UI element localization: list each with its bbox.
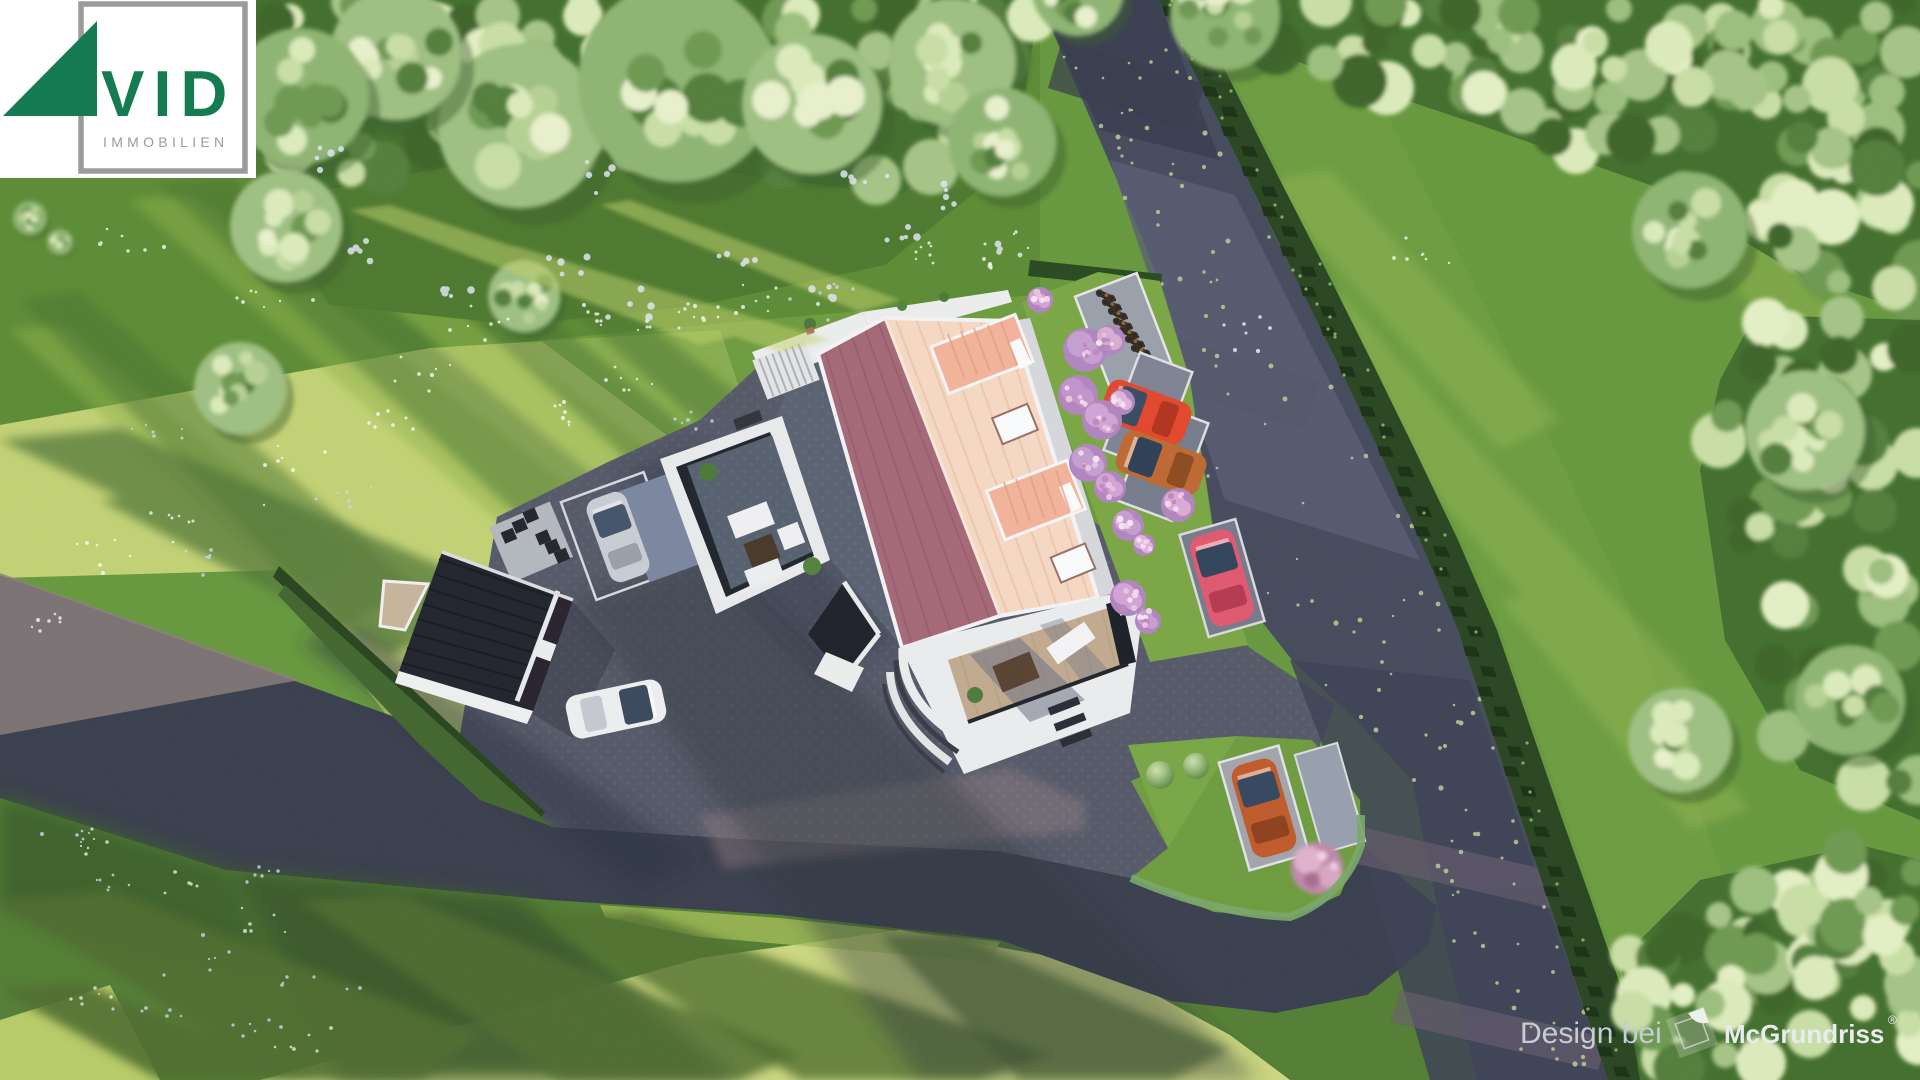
svg-text:Design bei: Design bei [1520,1017,1662,1050]
svg-text:IMMOBILIEN: IMMOBILIEN [103,134,228,150]
svg-text:McGrundriss: McGrundriss [1724,1019,1884,1049]
svg-text:®: ® [1888,1013,1897,1027]
svg-text:VID: VID [101,57,236,130]
